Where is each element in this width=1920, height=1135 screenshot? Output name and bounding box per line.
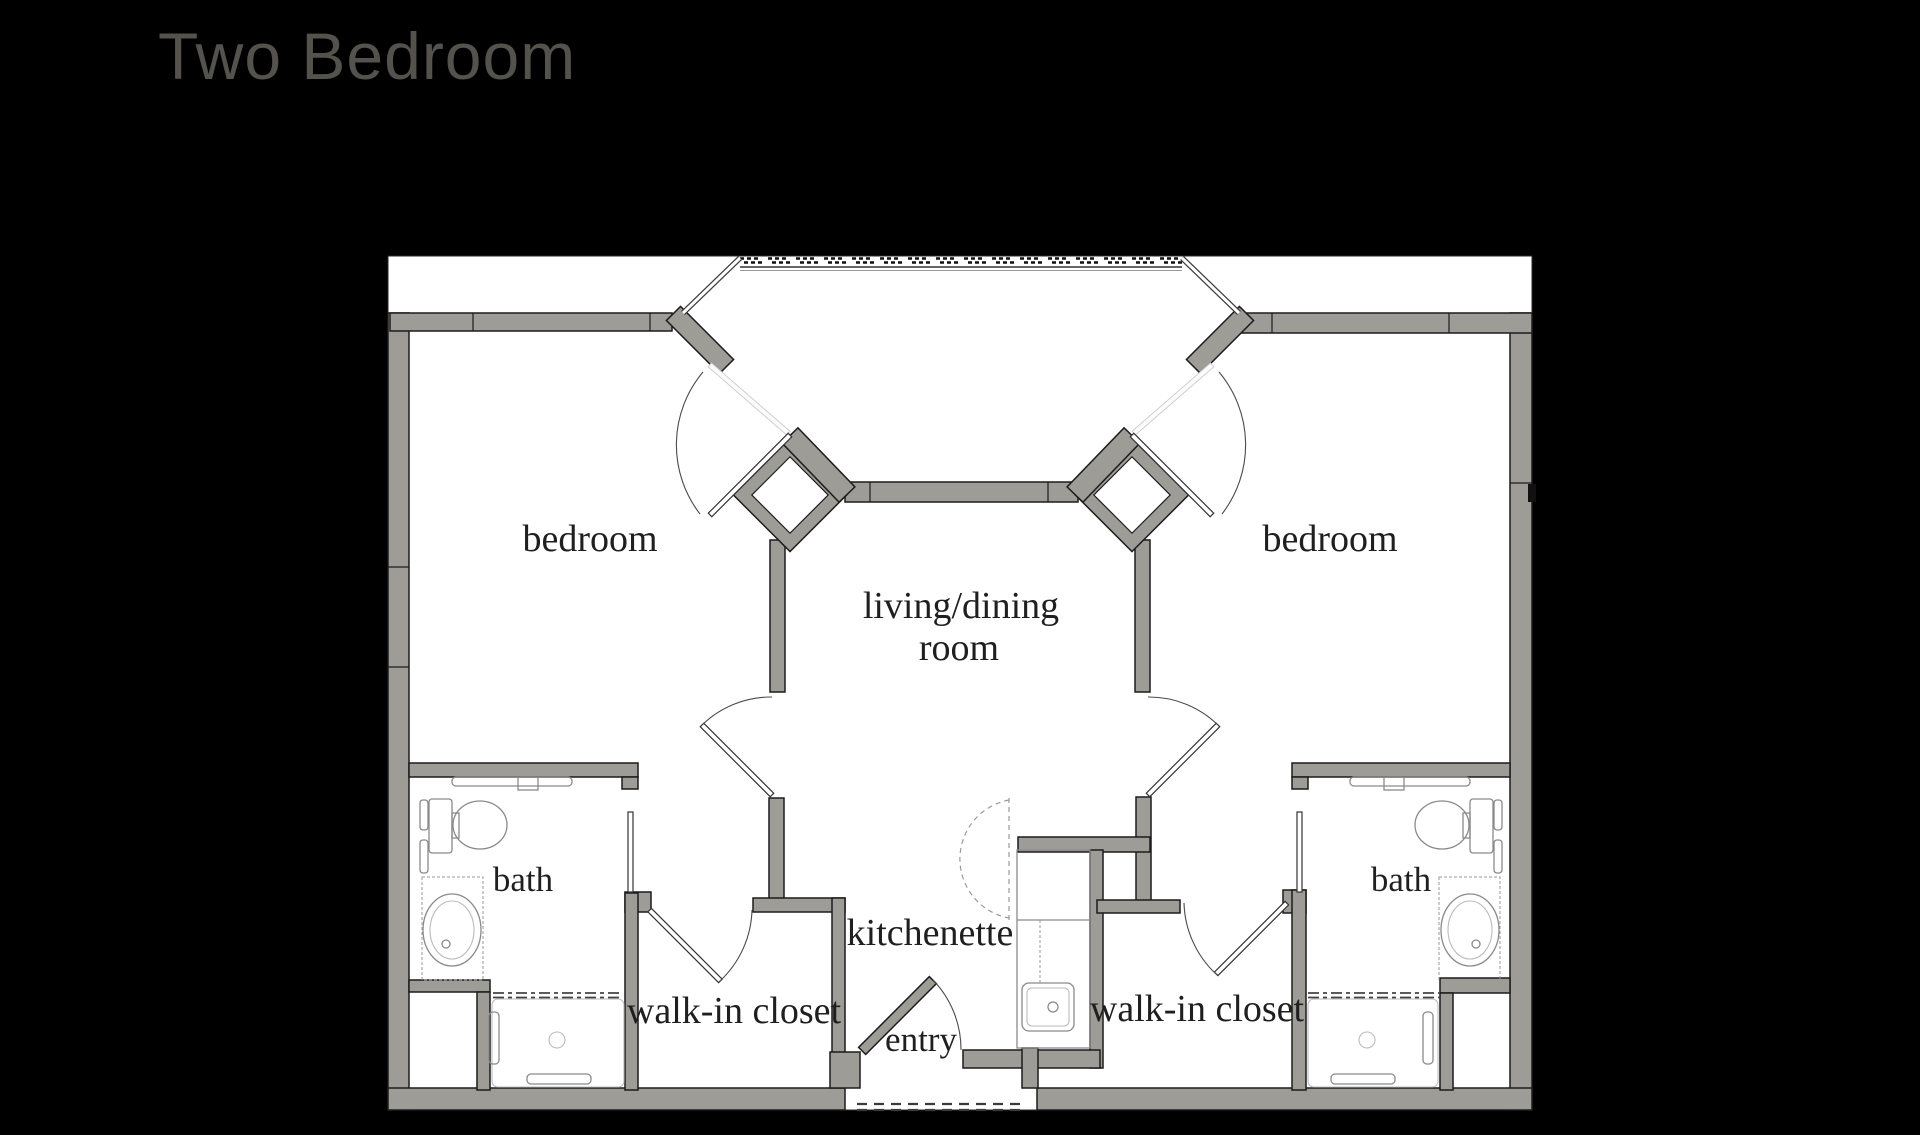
label-closet-right: walk-in closet: [1090, 988, 1305, 1030]
label-closet-left: walk-in closet: [627, 990, 842, 1032]
label-bath-left: bath: [493, 860, 554, 899]
floor-plan: bedroom bedroom living/dining room bath …: [0, 0, 1920, 1135]
label-living-2: room: [919, 627, 999, 669]
label-bath-right: bath: [1371, 860, 1432, 899]
label-bedroom-right: bedroom: [1262, 518, 1397, 560]
label-living-1: living/dining: [863, 585, 1059, 627]
label-kitchenette: kitchenette: [847, 912, 1014, 954]
wall-tick: [1528, 484, 1536, 502]
label-bedroom-left: bedroom: [522, 518, 657, 560]
label-entry: entry: [885, 1020, 957, 1059]
floor-area: [388, 256, 1532, 1110]
